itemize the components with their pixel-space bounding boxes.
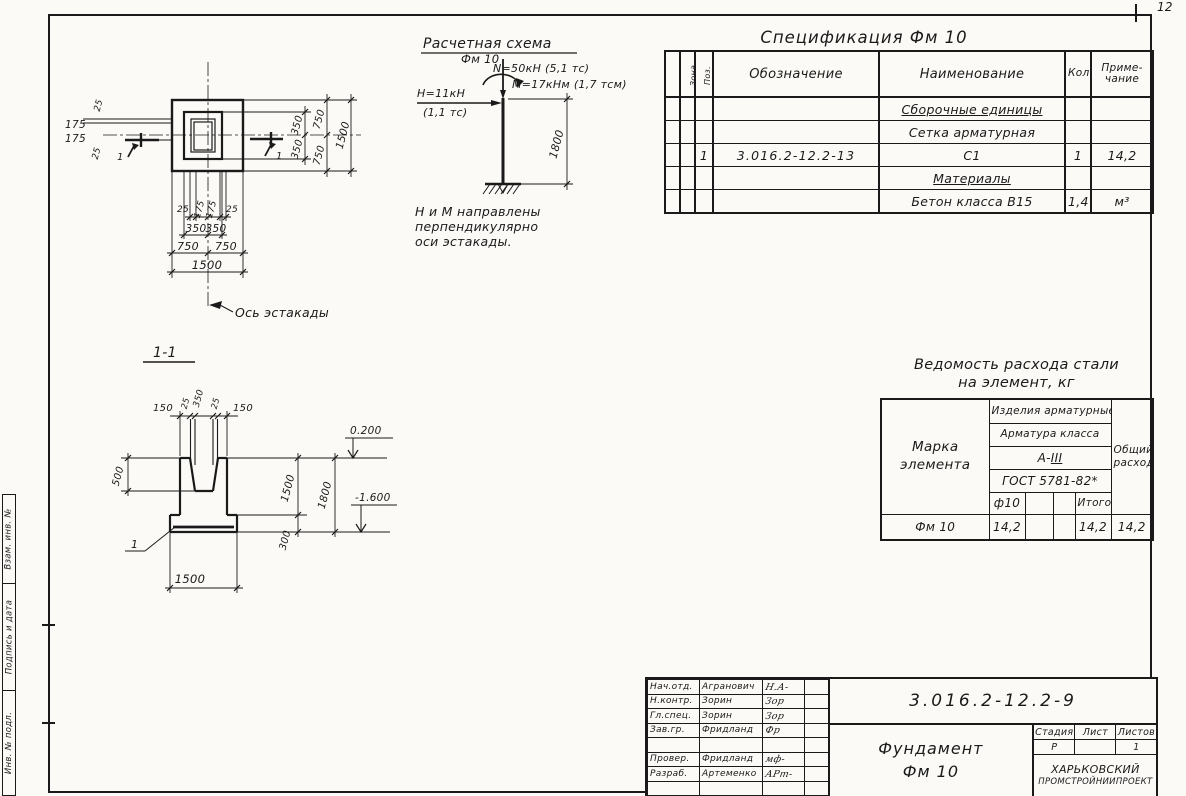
dim-label: 300 <box>278 529 294 551</box>
spec-header-row: Формат Зона Поз. Обозначение Наименовани… <box>665 51 1153 97</box>
signature-scribble: АРт- <box>761 767 806 782</box>
signature-row: Гл.спец. Зорин Зор <box>648 709 829 724</box>
scheme-title: Расчетная схема <box>423 36 552 52</box>
steel-consumption-block: Ведомость расхода стали на элемент, кг М… <box>880 356 1153 541</box>
sig-name: Артеменко <box>700 767 763 782</box>
spec-qty: 1,4 <box>1065 190 1091 214</box>
steel-header-dia: ф10 <box>989 492 1025 514</box>
specification-title: Спецификация Фм 10 <box>664 28 1064 47</box>
dim-label: 25 <box>210 397 223 411</box>
sig-name: Фридланд <box>700 752 763 767</box>
scheme-note-2: перпендикулярно <box>415 219 538 234</box>
steel-header-total: Итого <box>1075 492 1111 514</box>
specification-table: Формат Зона Поз. Обозначение Наименовани… <box>664 50 1154 214</box>
section-foundation-outline <box>170 458 237 532</box>
spec-qty <box>1065 97 1091 121</box>
spec-designation: 3.016.2-12.2-13 <box>713 144 879 167</box>
spec-pos <box>695 97 713 121</box>
signature-row: Н.контр. Зорин Зор <box>648 694 829 709</box>
sig-name: Зорин <box>700 694 763 709</box>
elevation-value: -1.600 <box>355 492 391 504</box>
plan-cut-mark-right: 1 <box>250 132 283 162</box>
scheme-force-n: N=50кН (5,1 тс) <box>493 62 589 75</box>
dim-label: 25 <box>177 205 189 215</box>
spec-note <box>1091 97 1153 121</box>
sig-role: Зав.гр. <box>648 723 700 738</box>
spec-header-zone: Зона <box>680 51 695 97</box>
spec-designation <box>713 121 879 144</box>
spec-row: Сборочные единицы <box>665 97 1153 121</box>
spec-name: С1 <box>879 144 1065 167</box>
spec-name: Материалы <box>879 167 1065 190</box>
scheme-moment-m: M=17кНм (1,7 тсм) <box>512 78 627 91</box>
spec-designation <box>713 97 879 121</box>
sig-role: Разраб. <box>648 767 700 782</box>
steel-header-products: Изделия арматурные <box>989 399 1111 423</box>
steel-mark-value: Фм 10 <box>881 514 989 540</box>
signature-row: Разраб. Артеменко АРт- <box>648 767 829 782</box>
frame-tick-left-1 <box>42 624 55 626</box>
signature-row: Нач.отд. Агранович Н.А- <box>648 680 829 695</box>
spec-header-designation: Обозначение <box>713 51 879 97</box>
signature-scribble: Зор <box>761 709 806 724</box>
cut-number-left: 1 <box>117 152 124 163</box>
steel-header-class-value: А-III <box>989 446 1111 469</box>
stage-header-row: Стадия Лист Листов <box>1034 725 1156 740</box>
signature-row <box>648 738 829 753</box>
strip-label-podpis: Подпись и дата <box>4 600 14 675</box>
steel-overall-value: 14,2 <box>1111 514 1153 540</box>
plan-cut-mark-left: 1 <box>117 133 159 163</box>
spec-pos <box>695 121 713 144</box>
dim-label: 500 <box>111 465 127 487</box>
spec-note: 14,2 <box>1091 144 1153 167</box>
spec-header-qty: Кол. <box>1065 51 1091 97</box>
spec-designation <box>713 190 879 214</box>
steel-data-row: Фм 10 14,2 14,2 14,2 <box>881 514 1153 540</box>
dim-label: 175 <box>65 119 86 131</box>
section-dim-ticks <box>125 413 338 591</box>
spec-name: Сетка арматурная <box>879 121 1065 144</box>
strip-cell-podpis: Подпись и дата <box>2 583 16 690</box>
drawing-title-cell: Фундамент Фм 10 <box>830 725 1035 796</box>
dim-label: 1500 <box>334 120 353 150</box>
sig-name: Агранович <box>700 680 763 695</box>
spec-designation <box>713 167 879 190</box>
spec-row: 1 3.016.2-12.2-13 С1 1 14,2 <box>665 144 1153 167</box>
sig-role: Н.контр. <box>648 694 700 709</box>
side-strip: Взам. инв. № Подпись и дата Инв. № подл. <box>2 494 16 796</box>
elevation-value: 0.200 <box>350 425 382 437</box>
dim-label: 750 <box>215 240 237 253</box>
sheets-label: Листов <box>1116 725 1156 740</box>
sig-name: Фридланд <box>700 723 763 738</box>
document-number-cell: 3.016.2-12.2-9 <box>830 679 1157 725</box>
sheets-value: 1 <box>1116 740 1156 755</box>
plan-view-drawing: 1 1 <box>55 40 405 340</box>
page-number: 12 <box>1157 0 1173 14</box>
spec-qty <box>1065 121 1091 144</box>
dim-label: 150 <box>153 403 173 414</box>
sig-role: Нач.отд. <box>648 680 700 695</box>
spec-pos <box>695 190 713 214</box>
dim-label: 1500 <box>192 258 222 272</box>
dim-label: 750 <box>177 240 199 253</box>
spec-row: Сетка арматурная <box>665 121 1153 144</box>
signature-scribble: Н.А- <box>761 680 806 695</box>
spec-qty <box>1065 167 1091 190</box>
drawing-sheet: 12 Взам. инв. № Подпись и дата Инв. № по… <box>0 0 1186 796</box>
plan-axis-callout: Ось эстакады <box>209 301 329 320</box>
dim-label: 25 <box>91 146 104 160</box>
dim-label: 350 <box>206 223 227 235</box>
signature-scribble: Зор <box>761 694 806 709</box>
steel-header-gost: ГОСТ 5781-82* <box>989 469 1111 492</box>
signature-table: Нач.отд. Агранович Н.А- Н.контр. Зорин З… <box>647 679 830 796</box>
stage-block: Стадия Лист Листов Р 1 ХАРЬКОВСКИЙ ПРОМС… <box>1034 725 1156 796</box>
plan-foundation-outline <box>172 100 243 171</box>
spec-header-note: Приме-чание <box>1091 51 1153 97</box>
spec-header-pos: Поз. <box>695 51 713 97</box>
signature-scribble: мф- <box>761 752 806 767</box>
signature-scribble: Фр <box>761 723 806 738</box>
steel-table-title: Ведомость расхода стали на элемент, кг <box>880 356 1153 392</box>
cut-number-right: 1 <box>276 151 283 162</box>
specification-block: Спецификация Фм 10 Формат Зона Поз. Обоз… <box>664 28 1153 214</box>
section-elevation-top: 0.200 <box>345 425 393 458</box>
strip-label-vzam: Взам. инв. № <box>4 508 14 569</box>
steel-dia-value: 14,2 <box>989 514 1025 540</box>
scheme-dim-height: 1800 <box>547 128 567 160</box>
signature-row: Провер. Фридланд мф- <box>648 752 829 767</box>
spec-qty: 1 <box>1065 144 1091 167</box>
sig-role: Провер. <box>648 752 700 767</box>
section-dim-labels: 150 25 350 25 150 500 1500 300 1800 1500 <box>111 388 335 586</box>
section-elevation-bottom: -1.600 <box>351 492 397 532</box>
spec-name: Бетон класса В15 <box>879 190 1065 214</box>
organization-line2: ПРОМСТРОЙНИИПРОЕКТ <box>1038 777 1152 788</box>
scheme-force-h: H=11кН <box>417 87 465 100</box>
frame-tick-left-2 <box>42 722 55 724</box>
steel-header-mark: Маркаэлемента <box>881 399 989 514</box>
stage-label: Стадия <box>1034 725 1075 740</box>
scheme-note-1: Н и М направлены <box>415 204 541 219</box>
stage-value: Р <box>1034 740 1075 755</box>
spec-row: Бетон класса В15 1,4 м³ <box>665 190 1153 214</box>
sig-role: Гл.спец. <box>648 709 700 724</box>
dim-label: 1500 <box>279 473 298 503</box>
steel-header-class-label: Арматура класса <box>989 423 1111 446</box>
section-1-1-drawing: 1-1 <box>95 343 415 598</box>
spec-pos: 1 <box>695 144 713 167</box>
dim-label: 25 <box>180 397 193 411</box>
dim-label: 350 <box>290 114 306 136</box>
stamp-right-area: 3.016.2-12.2-9 Фундамент Фм 10 Стадия Ли… <box>830 679 1157 796</box>
spec-pos <box>695 167 713 190</box>
signature-row: Зав.гр. Фридланд Фр <box>648 723 829 738</box>
dim-label: 175 <box>65 133 86 145</box>
spec-row: Материалы <box>665 167 1153 190</box>
scheme-note-3: оси эстакады. <box>415 234 512 249</box>
stage-value-row: Р 1 <box>1034 740 1156 755</box>
section-column-lines <box>191 419 218 465</box>
dim-label: 350 <box>186 223 207 235</box>
stamp-bottom-area: Фундамент Фм 10 Стадия Лист Листов Р 1 <box>830 725 1157 796</box>
sheet-value <box>1075 740 1116 755</box>
dim-label: 350 <box>192 388 206 408</box>
strip-cell-inv: Инв. № подл. <box>2 690 16 796</box>
spec-name: Сборочные единицы <box>879 97 1065 121</box>
section-title: 1-1 <box>153 345 177 361</box>
sheet-label: Лист <box>1075 725 1116 740</box>
spec-note: м³ <box>1091 190 1153 214</box>
dim-label: 25 <box>226 205 238 215</box>
spec-note <box>1091 167 1153 190</box>
dim-label: 1800 <box>316 480 335 510</box>
dim-label: 350 <box>290 138 306 160</box>
dim-label: 150 <box>233 403 253 414</box>
document-number: 3.016.2-12.2-9 <box>909 691 1077 711</box>
dim-label: 25 <box>93 98 106 112</box>
organization-line1: ХАРЬКОВСКИЙ <box>1051 763 1140 777</box>
steel-consumption-table: Маркаэлемента Изделия арматурные Общийра… <box>880 398 1154 541</box>
dim-label: 1500 <box>175 572 205 586</box>
scheme-column-and-base <box>483 98 521 194</box>
drawing-title-line2: Фм 10 <box>903 761 959 783</box>
sig-name: Зорин <box>700 709 763 724</box>
detail-mark: 1 <box>131 538 138 551</box>
dim-label: 750 <box>312 144 328 166</box>
organization-cell: ХАРЬКОВСКИЙ ПРОМСТРОЙНИИПРОЕКТ <box>1034 755 1156 796</box>
calculation-scheme-drawing: Расчетная схема Фм 10 N=50кН (5,1 тс) M=… <box>415 33 650 248</box>
plan-dim-labels: 25 175 175 25 350 350 750 750 1500 25 17… <box>65 98 353 272</box>
steel-total-value: 14,2 <box>1075 514 1111 540</box>
signature-row <box>648 781 829 796</box>
drawing-title-line1: Фундамент <box>878 738 983 760</box>
plan-left-detail-lines <box>83 119 172 140</box>
scheme-force-h-ts: (1,1 тс) <box>423 106 467 119</box>
spec-header-name: Наименование <box>879 51 1065 97</box>
title-block: Нач.отд. Агранович Н.А- Н.контр. Зорин З… <box>645 677 1158 796</box>
axis-label: Ось эстакады <box>235 305 329 320</box>
section-detail-leader: 1 <box>125 527 175 551</box>
spec-note <box>1091 121 1153 144</box>
dim-label: 750 <box>312 108 328 130</box>
strip-label-inv: Инв. № подл. <box>4 712 14 774</box>
spec-header-format: Формат <box>665 51 680 97</box>
steel-header-overall: Общийрасход <box>1111 399 1153 514</box>
strip-cell-vzam: Взам. инв. № <box>2 494 16 583</box>
